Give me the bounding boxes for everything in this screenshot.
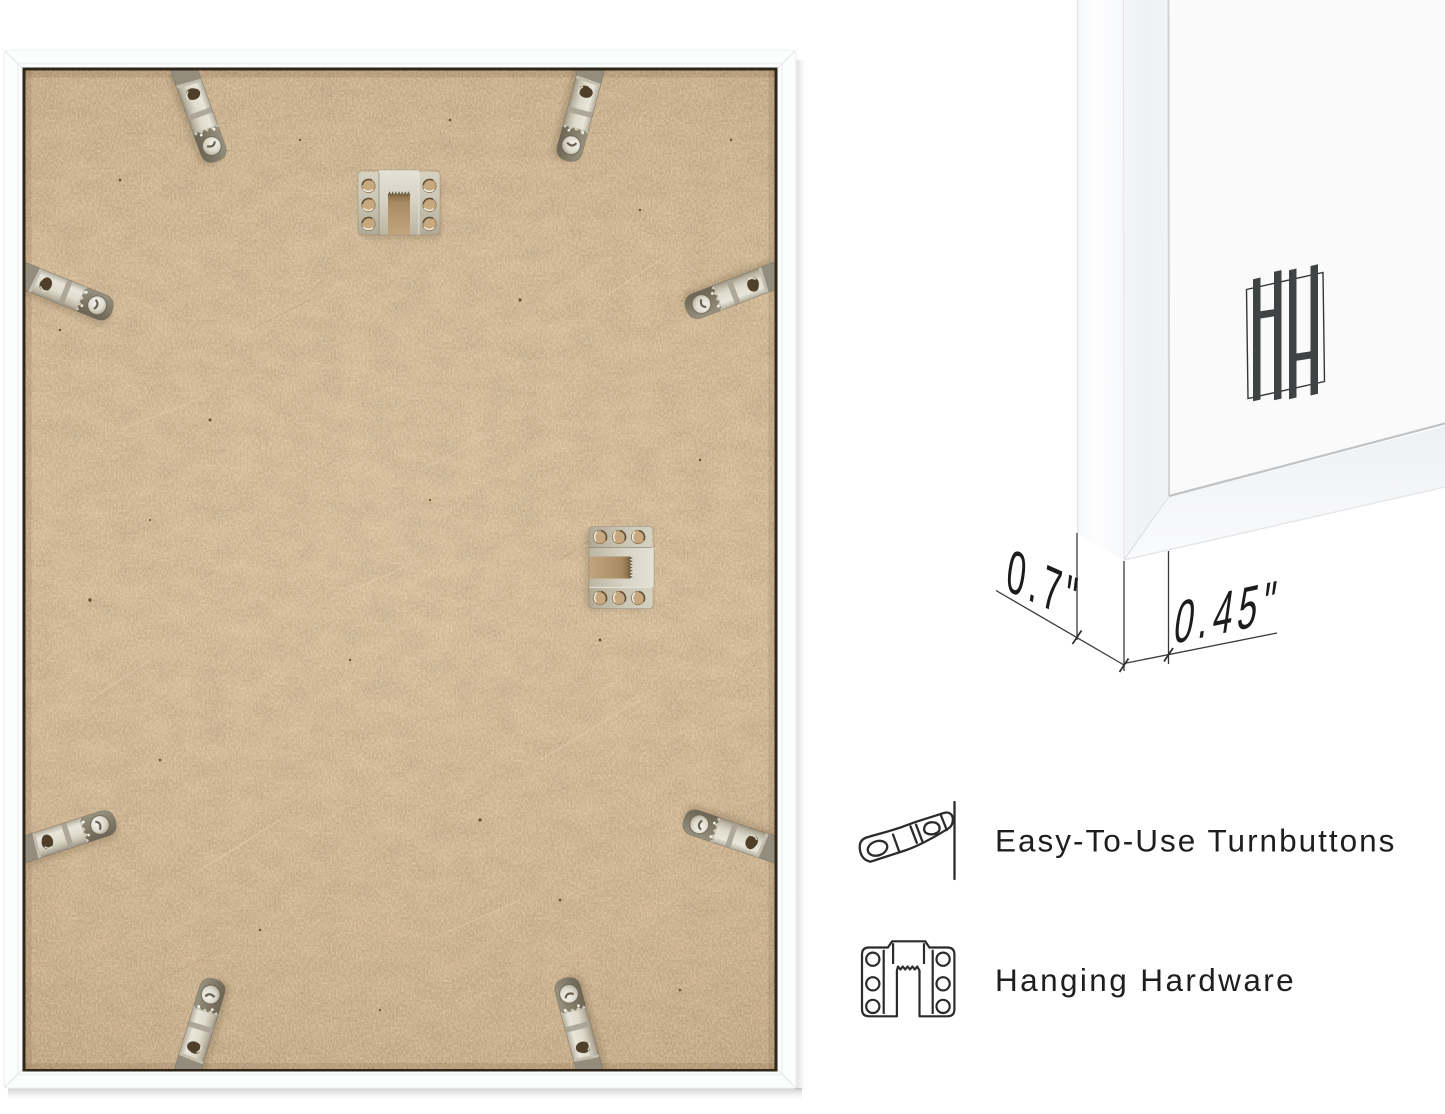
svg-text:Easy-To-Use Turnbuttons: Easy-To-Use Turnbuttons bbox=[995, 823, 1396, 859]
svg-text:Hanging Hardware: Hanging Hardware bbox=[995, 962, 1296, 998]
